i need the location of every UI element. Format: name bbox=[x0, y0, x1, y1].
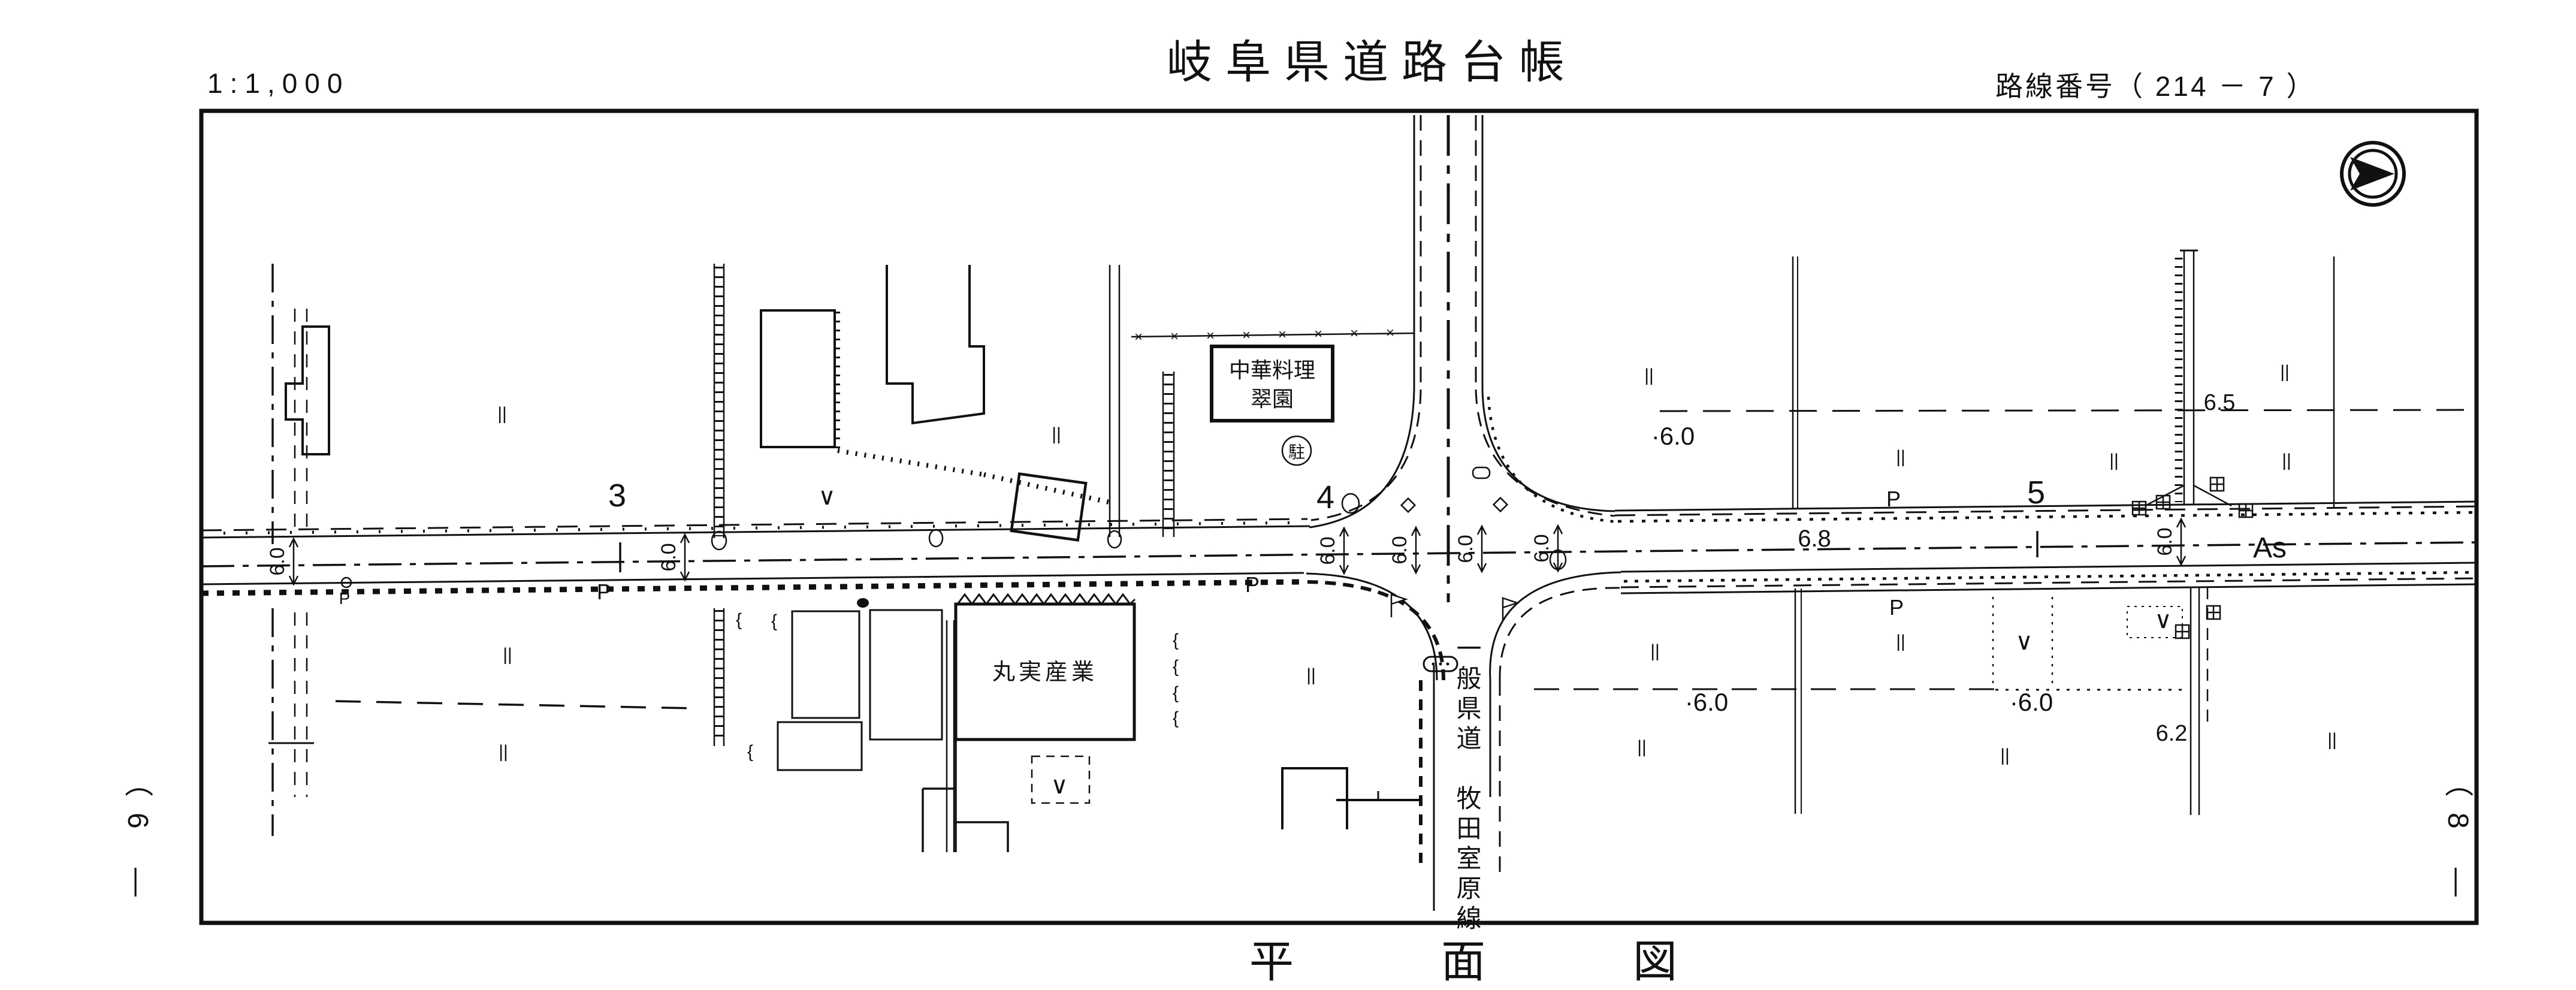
hook-mark: { bbox=[1173, 683, 1179, 703]
field-mark: || bbox=[1052, 424, 1061, 444]
veg-mark: ∨ bbox=[818, 484, 835, 510]
field-mark: || bbox=[497, 404, 507, 424]
fence-mark: × bbox=[1314, 326, 1322, 342]
fence-mark: × bbox=[1386, 325, 1394, 341]
station-5: 5 bbox=[2027, 475, 2045, 511]
station-3: 3 bbox=[608, 478, 626, 514]
fence-mark: × bbox=[1278, 327, 1287, 343]
width-note: ·6.0 bbox=[1685, 688, 1728, 716]
hook-mark: { bbox=[747, 742, 753, 762]
road-width-dimension: 6.0 bbox=[1530, 534, 1553, 562]
station-4: 4 bbox=[1316, 479, 1334, 515]
pavement-label: As bbox=[2253, 532, 2287, 564]
field-mark: || bbox=[1896, 447, 1905, 467]
fence-mark: × bbox=[1206, 328, 1215, 344]
road-width-dimension: 6.0 bbox=[2154, 527, 2176, 556]
buildings bbox=[286, 265, 1347, 852]
field-mark: || bbox=[1306, 665, 1316, 685]
p-mark: P bbox=[1889, 595, 1904, 620]
width-note: 6.5 bbox=[2204, 390, 2236, 415]
company-name-label: 丸実産業 bbox=[992, 660, 1098, 685]
width-note: ·6.0 bbox=[2010, 688, 2053, 716]
field-mark: || bbox=[2327, 730, 2337, 750]
hook-mark: { bbox=[1173, 657, 1179, 677]
road-width-dimension: 6.0 bbox=[1316, 536, 1339, 565]
road-width-dimension: 6.0 bbox=[1454, 535, 1477, 563]
fence-mark: × bbox=[1242, 327, 1251, 343]
road-width-dimension: 6.0 bbox=[657, 543, 680, 571]
field-mark: || bbox=[2109, 451, 2119, 470]
p-mark: P bbox=[1886, 487, 1901, 511]
road-ledger-sheet: { "sheet": { "scale": "1:1,000", "title"… bbox=[0, 0, 2576, 942]
road-width-dimension: 6.0 bbox=[1388, 536, 1411, 564]
hook-mark: { bbox=[1173, 630, 1179, 650]
field-mark: || bbox=[2000, 745, 2010, 765]
p-mark: P bbox=[597, 579, 611, 604]
p-mark: P bbox=[339, 589, 351, 608]
field-mark: || bbox=[503, 645, 512, 665]
fence-mark: × bbox=[1170, 328, 1179, 345]
parcel-lines bbox=[268, 250, 2477, 836]
restaurant-name-line1: 中華料理 bbox=[1229, 358, 1315, 382]
field-mark: || bbox=[1637, 737, 1647, 757]
road-width-dimension: 6.0 bbox=[266, 547, 289, 575]
parking-symbol-char: 駐 bbox=[1288, 443, 1305, 461]
fence-mark: × bbox=[1134, 329, 1143, 345]
veg-mark: ∨ bbox=[2015, 629, 2033, 655]
gate-symbols bbox=[2133, 478, 2252, 638]
width-note: ·6.0 bbox=[1651, 422, 1695, 450]
field-mark: || bbox=[2280, 362, 2290, 382]
fence-mark: × bbox=[1350, 325, 1358, 342]
p-mark: P bbox=[1245, 572, 1260, 597]
field-mark: || bbox=[1650, 641, 1660, 661]
field-mark: || bbox=[2282, 451, 2291, 470]
cross-road bbox=[1306, 115, 1621, 911]
width-note: 6.8 bbox=[1798, 526, 1831, 552]
hook-mark: { bbox=[1173, 708, 1179, 728]
width-note: 6.2 bbox=[2156, 721, 2188, 746]
veg-mark: ∨ bbox=[1050, 772, 1068, 799]
hook-mark: { bbox=[736, 610, 742, 630]
restaurant-name-line2: 翠園 bbox=[1251, 387, 1294, 411]
north-arrow-icon bbox=[2342, 143, 2404, 205]
field-mark: || bbox=[1644, 366, 1654, 385]
field-mark: || bbox=[499, 742, 508, 762]
veg-mark: ∨ bbox=[2154, 607, 2172, 633]
map-canvas: 345PPPPP||||||||||||||||||||||||||||||∨∨… bbox=[0, 0, 2576, 942]
hook-mark: { bbox=[771, 611, 777, 631]
field-mark: || bbox=[1896, 632, 1905, 651]
